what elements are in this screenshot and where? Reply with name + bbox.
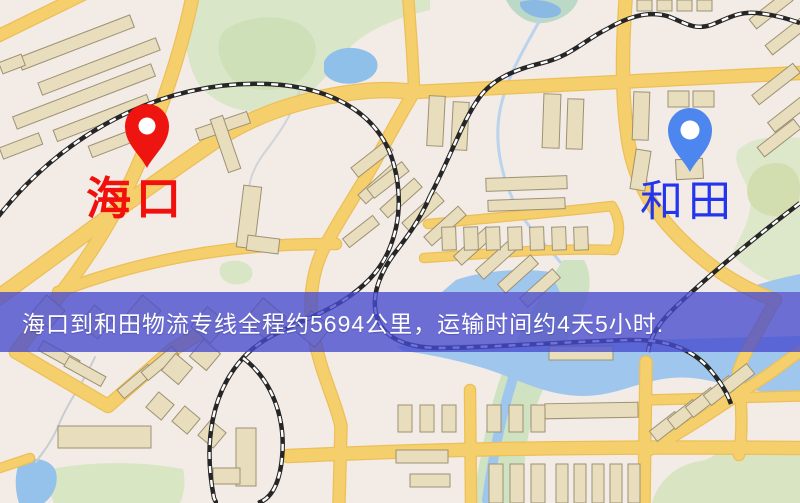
blue-pin-icon: [666, 104, 714, 172]
origin-marker[interactable]: [123, 100, 171, 168]
destination-marker[interactable]: [666, 104, 714, 172]
map-canvas[interactable]: [0, 0, 800, 503]
origin-city-label: 海口: [86, 176, 186, 221]
red-pin-icon: [123, 100, 171, 168]
route-info-text: 海口到和田物流专线全程约5694公里，运输时间约4天5小时.: [22, 305, 664, 339]
map-viewport[interactable]: 海口 和田 海口到和田物流专线全程约5694公里，运输时间约4天5小时.: [0, 0, 800, 503]
route-info-banner: 海口到和田物流专线全程约5694公里，运输时间约4天5小时.: [0, 292, 800, 352]
destination-city-label: 和田: [640, 181, 736, 224]
